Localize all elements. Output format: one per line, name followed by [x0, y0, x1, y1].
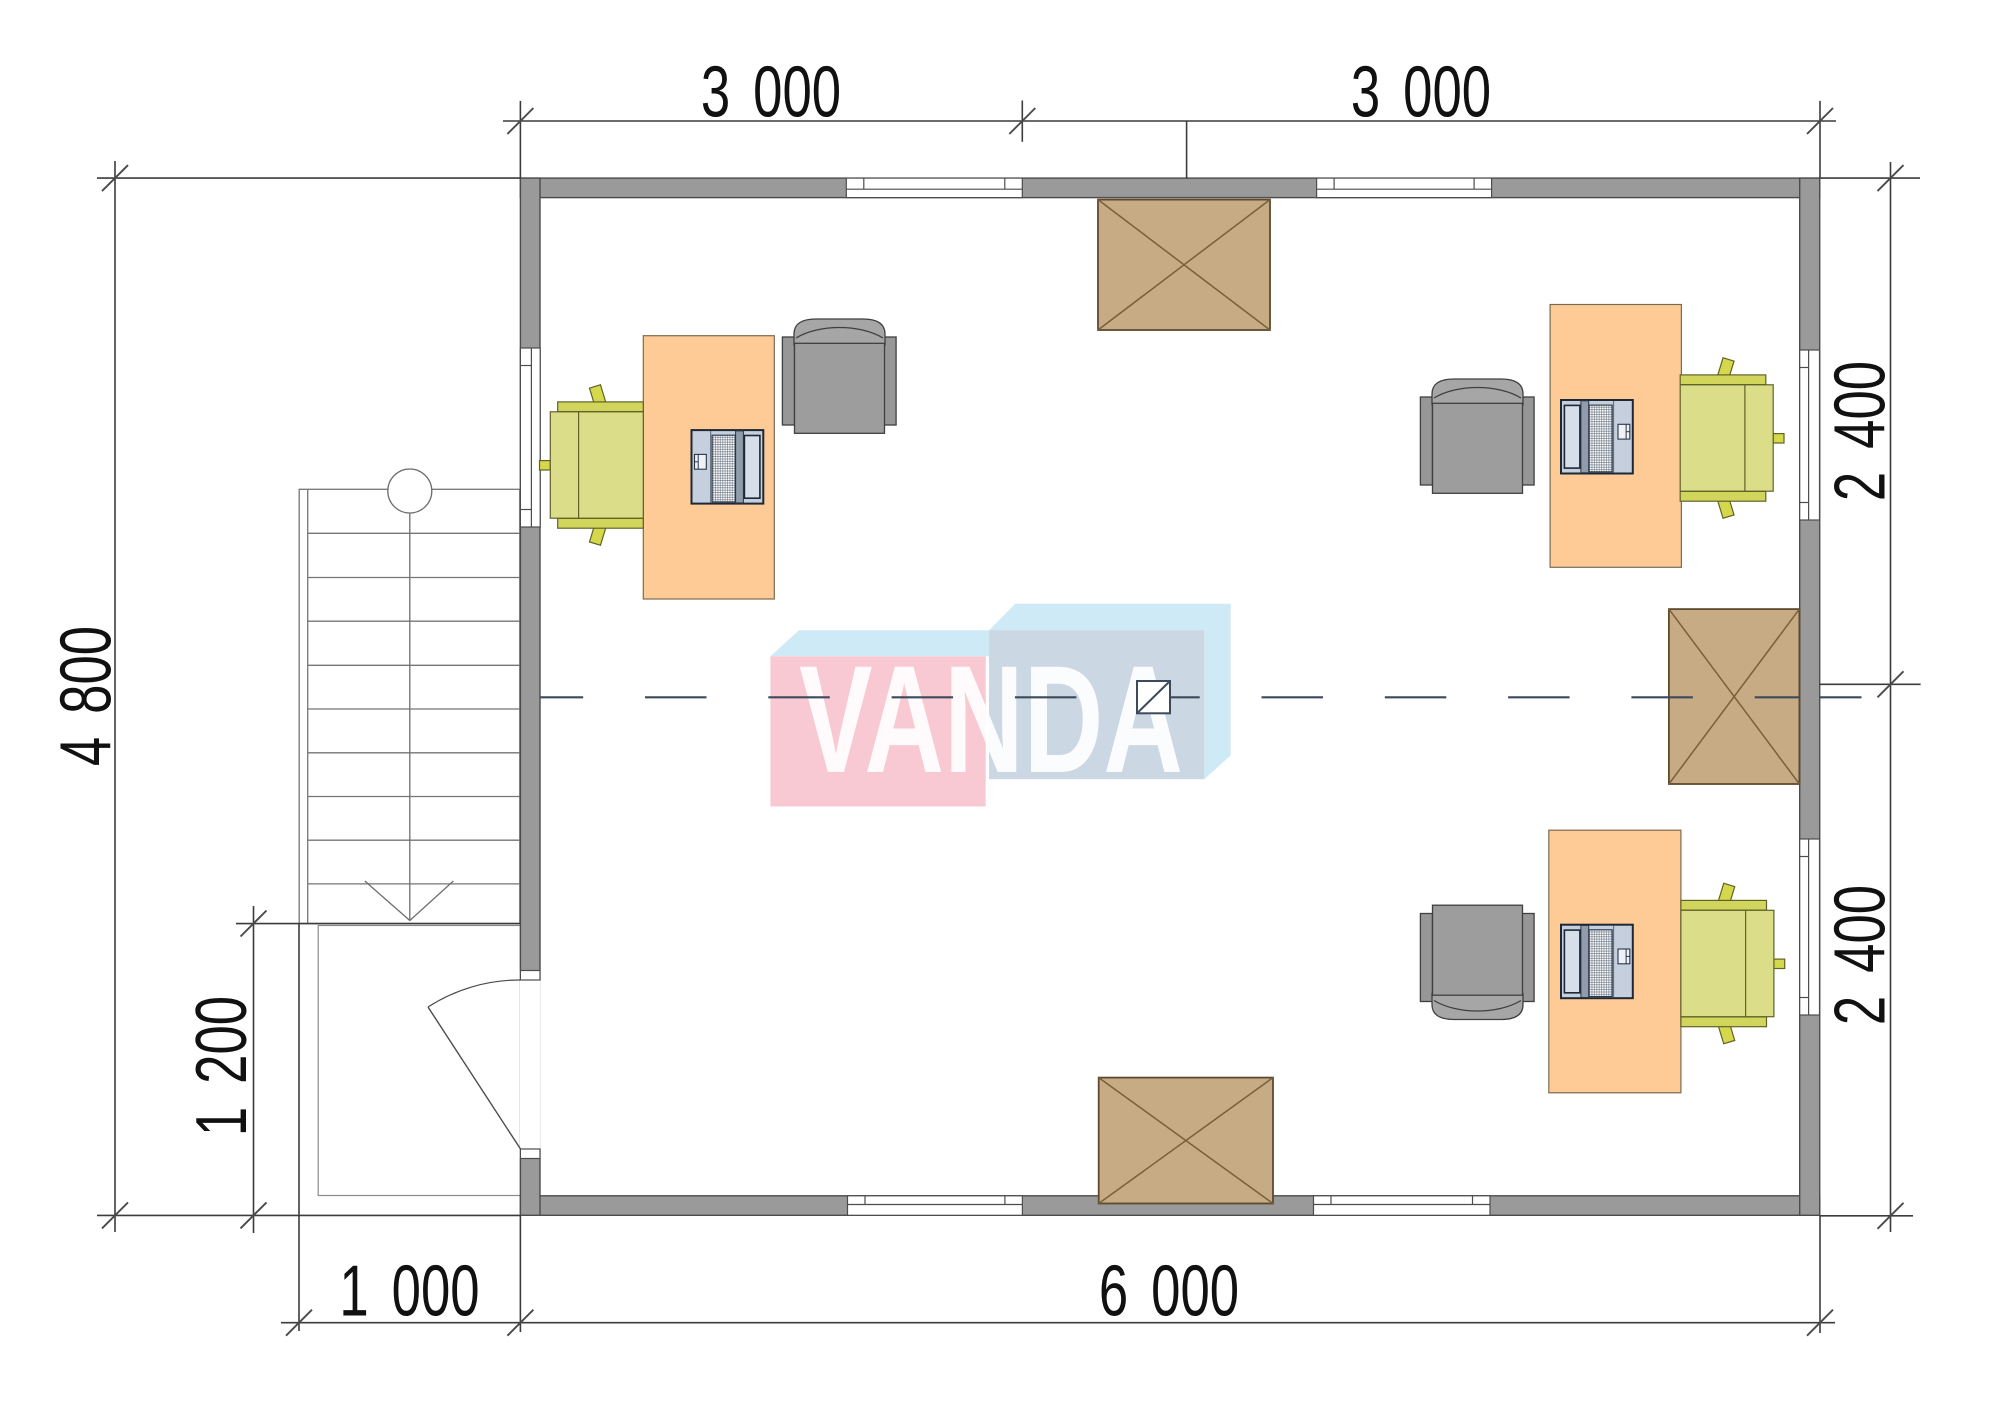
svg-text:6 000: 6 000 [1099, 1251, 1239, 1331]
svg-text:4 800: 4 800 [46, 626, 126, 766]
svg-text:2 400: 2 400 [1820, 885, 1900, 1025]
svg-text:3 000: 3 000 [1351, 52, 1491, 132]
svg-text:1 200: 1 200 [182, 996, 262, 1136]
svg-text:VANDA: VANDA [799, 634, 1183, 805]
svg-text:2 400: 2 400 [1820, 361, 1900, 501]
svg-text:3 000: 3 000 [701, 52, 841, 132]
svg-text:1 000: 1 000 [339, 1251, 479, 1331]
